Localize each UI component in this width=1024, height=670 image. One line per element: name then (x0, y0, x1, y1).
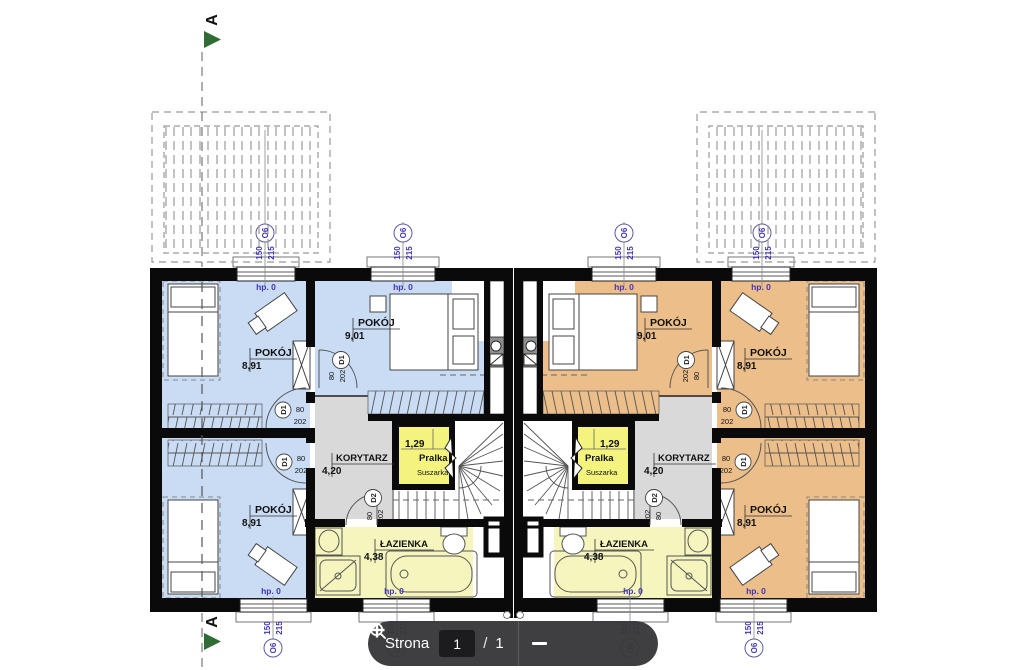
floor-plan-page: A A hp. 0 hp. 0 hp. 0 hp. 0 POKÓJ 8,91 P… (0, 0, 1024, 670)
section-label-bottom: A (204, 616, 221, 628)
floor-level-label: hp. 0 (261, 586, 281, 596)
window-code: O6 (758, 227, 767, 238)
floor-level-label: hp. 0 (746, 586, 766, 596)
page-number-input[interactable]: 1 (439, 630, 475, 657)
window-code: O6 (399, 227, 408, 238)
svg-text:215: 215 (275, 621, 284, 635)
minus-icon (532, 642, 547, 645)
floor-level-label: hp. 0 (256, 282, 276, 292)
section-arrow-top-icon (204, 31, 221, 48)
room-area: 4,20 (644, 466, 664, 477)
svg-text:215: 215 (764, 246, 773, 260)
svg-text:150: 150 (393, 246, 402, 260)
room-area: 9,01 (345, 331, 365, 342)
zoom-in-button[interactable] (591, 621, 625, 666)
room-area: 9,01 (637, 331, 657, 342)
door-code: D1 (279, 405, 288, 415)
svg-text:150: 150 (263, 621, 272, 635)
floor-level-label: hp. 0 (751, 282, 771, 292)
svg-text:80: 80 (692, 372, 701, 380)
door-code: D1 (337, 355, 346, 365)
room-name: POKÓJ (358, 316, 395, 329)
zoom-out-button[interactable] (523, 621, 557, 666)
svg-text:150: 150 (744, 621, 753, 635)
floor-level-label: hp. 0 (384, 586, 404, 596)
room-name: Pralka (585, 453, 614, 464)
window-code: O6 (269, 642, 278, 653)
page-label: Strona (385, 635, 429, 652)
room-area: 8,91 (242, 518, 262, 529)
svg-text:202: 202 (338, 370, 347, 383)
toolbar-divider (518, 621, 519, 666)
room-subname: Suszarka (586, 468, 618, 477)
door-code: D2 (650, 493, 659, 503)
room-area: 8,91 (737, 361, 757, 372)
floor-plan-drawing: A A hp. 0 hp. 0 hp. 0 hp. 0 POKÓJ 8,91 P… (0, 0, 1024, 670)
svg-text:202: 202 (643, 510, 652, 523)
zoom-reset-button[interactable] (557, 621, 591, 666)
room-name: KORYTARZ (658, 453, 710, 464)
door-code: D1 (740, 405, 749, 415)
room-name: POKÓJ (255, 346, 292, 359)
svg-text:202: 202 (681, 370, 690, 383)
room-name: POKÓJ (255, 503, 292, 516)
unit-right (514, 112, 877, 657)
page-total: 1 (495, 635, 503, 652)
room-name: KORYTARZ (336, 453, 388, 464)
room-area: 4,20 (322, 466, 342, 477)
svg-text:215: 215 (756, 621, 765, 635)
svg-text:202: 202 (294, 417, 307, 426)
svg-text:80: 80 (722, 454, 730, 463)
svg-text:80: 80 (296, 405, 304, 414)
svg-text:202: 202 (376, 510, 385, 523)
svg-text:150: 150 (614, 246, 623, 260)
svg-text:202: 202 (721, 417, 734, 426)
plus-icon (368, 621, 386, 639)
pdf-toolbar: Strona 1 / 1 (368, 621, 658, 666)
svg-text:80: 80 (365, 512, 374, 520)
floor-level-label: hp. 0 (614, 282, 634, 292)
svg-text:215: 215 (267, 246, 276, 260)
room-subname: Suszarka (417, 468, 449, 477)
room-area: 1,29 (600, 439, 620, 450)
svg-text:80: 80 (723, 405, 731, 414)
room-name: Pralka (419, 453, 448, 464)
svg-text:150: 150 (752, 246, 761, 260)
svg-text:80: 80 (327, 372, 336, 380)
room-name: POKÓJ (750, 503, 787, 516)
window-code: O6 (620, 227, 629, 238)
door-code: D1 (280, 457, 289, 467)
room-name: POKÓJ (750, 346, 787, 359)
room-area: 8,91 (242, 361, 262, 372)
window-code: O6 (750, 642, 759, 653)
unit-left (150, 112, 513, 657)
floor-level-label: hp. 0 (623, 586, 643, 596)
svg-text:202: 202 (295, 466, 308, 475)
section-arrow-bottom-icon (204, 633, 221, 650)
room-area: 4,38 (584, 552, 604, 563)
room-area: 1,29 (405, 439, 425, 450)
svg-text:215: 215 (405, 246, 414, 260)
room-name: ŁAZIENKA (380, 539, 428, 550)
room-area: 4,38 (364, 552, 384, 563)
window-code: O6 (261, 227, 270, 238)
page-separator: / (483, 635, 487, 652)
svg-text:202: 202 (720, 466, 733, 475)
floor-level-label: hp. 0 (393, 282, 413, 292)
section-label-top: A (204, 14, 221, 26)
room-name: POKÓJ (650, 316, 687, 329)
svg-text:80: 80 (654, 512, 663, 520)
room-area: 8,91 (737, 518, 757, 529)
room-name: ŁAZIENKA (600, 539, 648, 550)
door-code: D2 (369, 493, 378, 503)
svg-text:80: 80 (297, 454, 305, 463)
svg-text:215: 215 (626, 246, 635, 260)
door-code: D1 (682, 355, 691, 365)
svg-text:150: 150 (255, 246, 264, 260)
door-code: D1 (739, 457, 748, 467)
